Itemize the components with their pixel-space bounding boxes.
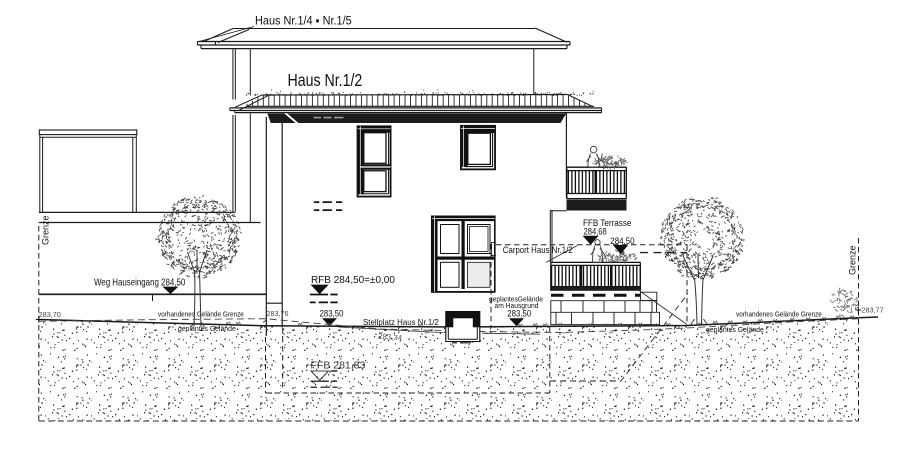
svg-text:284,68: 284,68 xyxy=(584,226,608,237)
svg-text:283,77: 283,77 xyxy=(862,305,884,314)
svg-text:Haus Nr.1/4 ▪ Nr.1/5: Haus Nr.1/4 ▪ Nr.1/5 xyxy=(255,15,352,28)
svg-text:284,50: 284,50 xyxy=(610,236,634,247)
svg-text:RFB 284,50=±0,00: RFB 284,50=±0,00 xyxy=(311,275,395,286)
svg-text:Weg Hauseingang 284,50: Weg Hauseingang 284,50 xyxy=(94,276,185,287)
svg-text:geplantes Gelände: geplantes Gelände xyxy=(706,325,764,334)
svg-text:vorhandenes Gelände Grenze: vorhandenes Gelände Grenze xyxy=(736,311,822,319)
svg-text:283,50: 283,50 xyxy=(320,308,344,319)
svg-text:Carport Haus Nr.1/2: Carport Haus Nr.1/2 xyxy=(503,245,573,256)
svg-text:283,70: 283,70 xyxy=(39,310,61,319)
svg-text:Grenze: Grenze xyxy=(848,245,858,275)
svg-text:283,50: 283,50 xyxy=(507,308,531,319)
svg-text:283,76: 283,76 xyxy=(267,309,289,318)
svg-text:geplantes Gelände: geplantes Gelände xyxy=(178,324,236,333)
svg-text:Haus Nr.1/2: Haus Nr.1/2 xyxy=(288,72,363,91)
svg-text:Grenze: Grenze xyxy=(41,215,51,245)
